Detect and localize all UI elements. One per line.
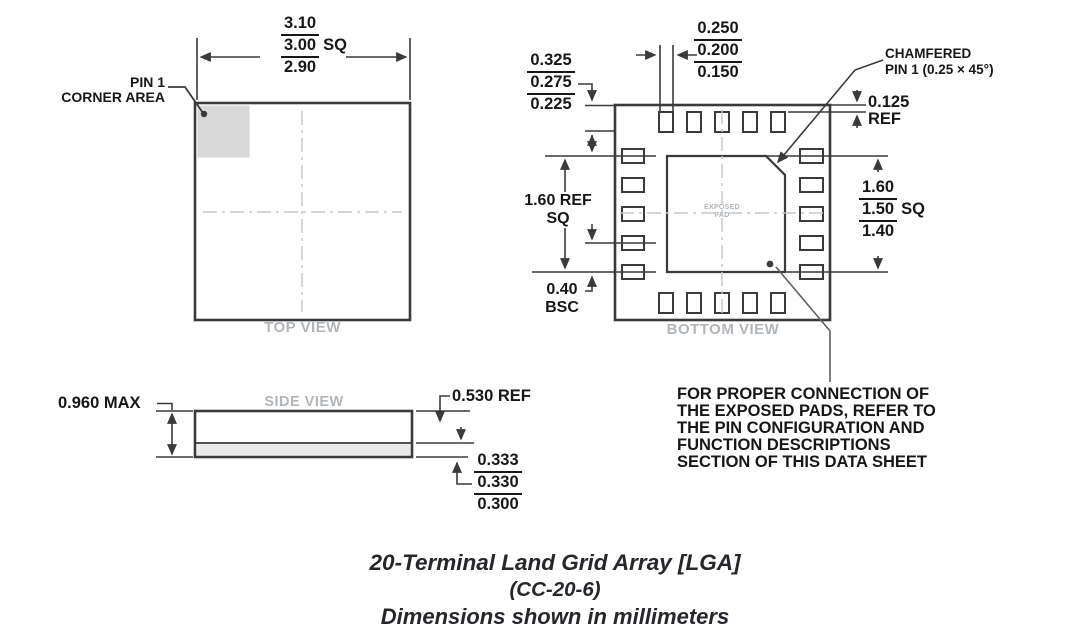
pitch-dimension: 0.40 BSC xyxy=(537,281,587,316)
dim-max: 0.333 xyxy=(474,451,521,473)
dim-max: 0.325 xyxy=(527,51,574,73)
standoff-dimension: 0.333 0.330 0.300 xyxy=(470,451,526,515)
top-view-label: TOP VIEW xyxy=(250,320,355,336)
terminal-layer-shading xyxy=(197,445,410,456)
caption-units-note: Dimensions shown in millimeters xyxy=(30,603,1080,631)
caption-package-code: (CC-20-6) xyxy=(30,577,1080,603)
dim-max: 1.60 xyxy=(859,178,897,200)
top-view-outline xyxy=(195,103,410,320)
dim-min: 2.90 xyxy=(281,58,319,78)
pin1-leader-dot xyxy=(201,111,207,117)
dim-nom: 0.275 xyxy=(527,73,574,95)
dim-max: 3.10 xyxy=(281,14,319,36)
corner-gap-dimension: 0.125 REF xyxy=(868,94,909,127)
dim-nom: 1.50SQ xyxy=(859,200,897,222)
pad-span-dimension: 1.60 REF SQ xyxy=(518,192,598,229)
exposed-pad-label: EXPOSED PAD xyxy=(696,204,748,220)
dim-min: 0.150 xyxy=(694,63,741,83)
pad-width-dimension: 0.250 0.200 0.150 xyxy=(692,19,744,83)
dim-min: 0.225 xyxy=(527,95,574,115)
edge-margin-dimension: 0.325 0.275 0.225 xyxy=(523,51,579,115)
dim-suffix: SQ xyxy=(901,200,925,218)
dim-nom: 0.330 xyxy=(474,473,521,495)
exposed-pad-reference-dot xyxy=(767,261,774,268)
body-ref-dimension: 0.530 REF xyxy=(452,388,531,406)
bottom-view-label: BOTTOM VIEW xyxy=(662,322,784,338)
side-view-label: SIDE VIEW xyxy=(258,395,350,411)
dim-suffix: SQ xyxy=(323,36,347,54)
figure-caption: 20-Terminal Land Grid Array [LGA] (CC-20… xyxy=(30,549,1080,631)
exposed-pad-connection-note: FOR PROPER CONNECTION OF THE EXPOSED PAD… xyxy=(677,386,936,471)
dim-min: 1.40 xyxy=(859,222,897,242)
caption-package-name: 20-Terminal Land Grid Array [LGA] xyxy=(30,549,1080,577)
dim-nom: 3.00SQ xyxy=(281,36,319,58)
dim-max: 0.250 xyxy=(694,19,741,41)
dim-nom: 0.200 xyxy=(694,41,741,63)
dim-min: 0.300 xyxy=(474,495,521,515)
pin1-corner-area-label: PIN 1 CORNER AREA xyxy=(50,75,165,105)
exposed-pad-size-dimension: 1.60 1.50SQ 1.40 xyxy=(856,178,900,242)
chamfered-pin1-note: CHAMFERED PIN 1 (0.25 × 45°) xyxy=(885,46,994,78)
lga-package-drawing: 3.10 3.00SQ 2.90 PIN 1 CORNER AREA TOP V… xyxy=(0,0,1080,639)
height-max-dimension: 0.960 MAX xyxy=(58,395,141,413)
top-view-size-dimension: 3.10 3.00SQ 2.90 xyxy=(270,14,330,78)
side-view-outline xyxy=(195,411,412,457)
